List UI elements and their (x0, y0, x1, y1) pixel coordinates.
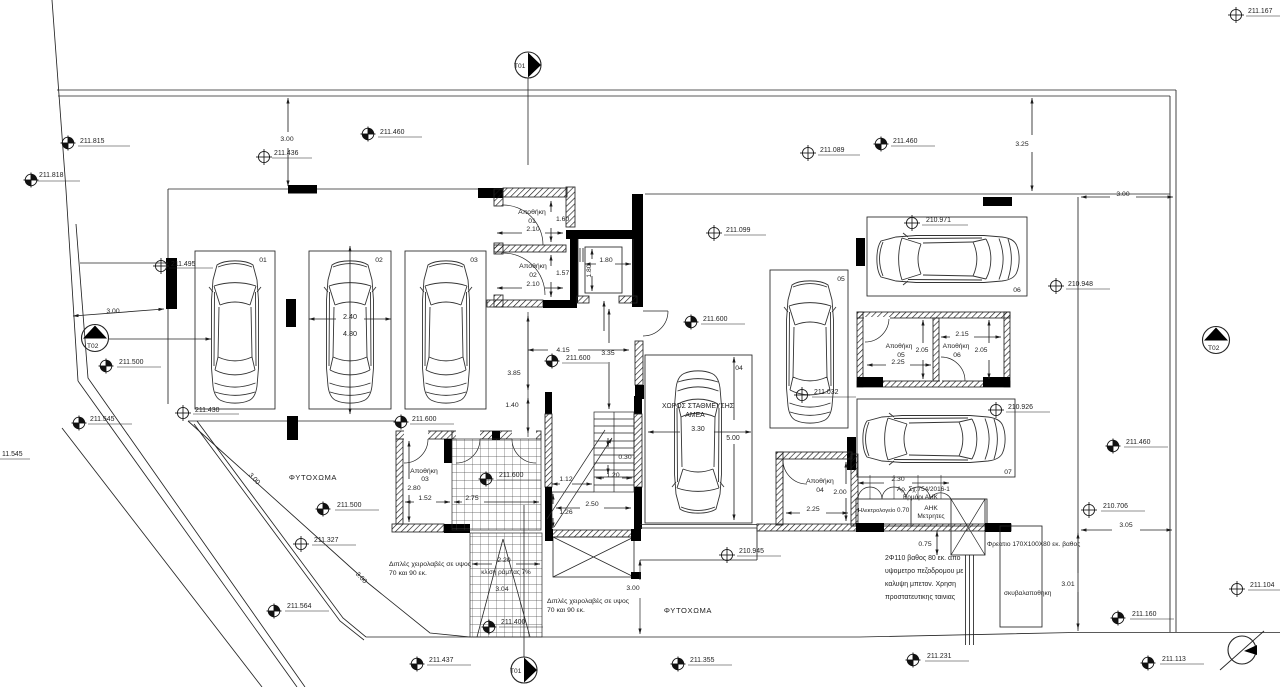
svg-text:2.25: 2.25 (891, 359, 904, 366)
svg-text:211.600: 211.600 (566, 355, 591, 362)
svg-text:3.04: 3.04 (495, 586, 508, 593)
svg-text:Αποθήκη: Αποθήκη (806, 478, 834, 485)
svg-text:02: 02 (375, 257, 383, 264)
svg-text:0.30: 0.30 (618, 454, 631, 461)
svg-text:211.460: 211.460 (893, 138, 918, 145)
svg-text:T02: T02 (1208, 345, 1220, 352)
svg-text:211.460: 211.460 (380, 129, 405, 136)
svg-text:01: 01 (259, 257, 267, 264)
svg-text:02: 02 (529, 272, 537, 279)
svg-text:2.75: 2.75 (465, 495, 478, 502)
svg-text:211.400: 211.400 (501, 619, 526, 626)
svg-text:211.089: 211.089 (820, 147, 845, 154)
svg-text:ΦΥΤΟΧΩΜΑ: ΦΥΤΟΧΩΜΑ (664, 606, 713, 615)
svg-text:σκυβαλαποθηκη: σκυβαλαποθηκη (1004, 590, 1052, 597)
svg-text:3.35: 3.35 (601, 350, 614, 357)
svg-text:Φρεατιο 170Χ100Χ80 εκ. βαθος: Φρεατιο 170Χ100Χ80 εκ. βαθος (987, 541, 1080, 548)
svg-text:5.00: 5.00 (726, 435, 740, 442)
svg-text:211.564: 211.564 (287, 603, 312, 610)
svg-text:211.160: 211.160 (1132, 611, 1157, 618)
svg-text:Διπλές χειρολαβές σε υψος: Διπλές χειρολαβές σε υψος (389, 560, 472, 568)
svg-text:2.00: 2.00 (833, 489, 846, 496)
svg-text:05: 05 (837, 276, 845, 283)
svg-text:211.436: 211.436 (274, 150, 299, 157)
svg-text:1.80: 1.80 (586, 264, 593, 277)
svg-text:προστατευτικης ταινιας: προστατευτικης ταινιας (885, 594, 956, 601)
svg-text:210.971: 210.971 (926, 217, 951, 224)
svg-text:03: 03 (421, 476, 429, 483)
svg-text:211.355: 211.355 (690, 657, 715, 664)
svg-text:3.01: 3.01 (1061, 581, 1074, 588)
svg-text:T01: T01 (510, 668, 522, 675)
svg-text:3.00: 3.00 (1116, 191, 1129, 198)
svg-text:1.80: 1.80 (599, 257, 612, 264)
svg-text:04: 04 (816, 487, 824, 494)
svg-text:07: 07 (1004, 469, 1012, 476)
svg-text:0.70: 0.70 (897, 507, 910, 514)
svg-text:1.26: 1.26 (559, 509, 572, 516)
svg-text:3.30: 3.30 (691, 426, 705, 433)
svg-text:211.545: 211.545 (90, 416, 115, 423)
svg-text:211.099: 211.099 (726, 227, 751, 234)
svg-text:2.40: 2.40 (343, 312, 357, 321)
svg-text:T02: T02 (87, 343, 99, 350)
svg-text:2Φ110 βαθος 80 εκ. απο: 2Φ110 βαθος 80 εκ. απο (885, 555, 961, 562)
svg-text:2.20: 2.20 (497, 557, 510, 564)
svg-text:1.52: 1.52 (418, 495, 431, 502)
svg-text:01: 01 (528, 218, 536, 225)
svg-text:211.500: 211.500 (337, 502, 362, 509)
svg-text:2.80: 2.80 (407, 485, 420, 492)
svg-text:210.926: 210.926 (1008, 404, 1033, 411)
svg-text:211.437: 211.437 (429, 657, 454, 664)
svg-text:T01: T01 (514, 63, 526, 70)
svg-text:2.50: 2.50 (585, 501, 598, 508)
svg-text:211.231: 211.231 (927, 653, 952, 660)
svg-text:ΦΥΤΟΧΩΜΑ: ΦΥΤΟΧΩΜΑ (289, 473, 338, 482)
svg-text:κλίση ράμπας 7%: κλίση ράμπας 7% (481, 568, 531, 576)
svg-text:4.15: 4.15 (556, 347, 569, 354)
svg-text:2.30: 2.30 (891, 476, 904, 483)
svg-text:04: 04 (735, 365, 743, 372)
svg-text:3.00: 3.00 (106, 308, 119, 315)
svg-text:1.57: 1.57 (556, 270, 569, 277)
svg-text:211.430: 211.430 (195, 407, 220, 414)
svg-text:ΑΜΕΑ: ΑΜΕΑ (685, 412, 705, 419)
svg-text:211.327: 211.327 (314, 537, 339, 544)
svg-text:210.945: 210.945 (739, 548, 764, 555)
svg-text:Αποθήκη: Αποθήκη (943, 343, 970, 350)
svg-text:211.818: 211.818 (39, 172, 64, 179)
svg-text:2.05: 2.05 (916, 347, 929, 354)
svg-text:211.600: 211.600 (499, 472, 524, 479)
svg-text:70 και 90 εκ.: 70 και 90 εκ. (389, 570, 427, 577)
svg-text:Ηλεκτρολογείο: Ηλεκτρολογείο (858, 508, 895, 514)
svg-text:2.10: 2.10 (526, 226, 539, 233)
svg-text:1.12: 1.12 (559, 476, 572, 483)
svg-text:05: 05 (897, 352, 905, 359)
svg-text:210.948: 210.948 (1068, 281, 1093, 288)
svg-text:03: 03 (470, 257, 478, 264)
svg-text:3.25: 3.25 (1015, 141, 1028, 148)
svg-text:Αρ. Σχ.754/2016-1: Αρ. Σχ.754/2016-1 (897, 486, 950, 493)
svg-text:ΧΩΡΟΣ ΣΤΑΘΜΕΥΣΗΣ: ΧΩΡΟΣ ΣΤΑΘΜΕΥΣΗΣ (662, 403, 734, 410)
svg-text:3.00: 3.00 (626, 585, 639, 592)
svg-text:06: 06 (1013, 287, 1021, 294)
svg-text:211.460: 211.460 (1126, 439, 1151, 446)
svg-text:211.032: 211.032 (814, 389, 839, 396)
svg-text:211.113: 211.113 (1162, 656, 1186, 663)
svg-text:Μετρητες: Μετρητες (917, 513, 944, 520)
svg-text:4.80: 4.80 (343, 329, 357, 338)
svg-text:υψομετρο πεζοδρομου με: υψομετρο πεζοδρομου με (885, 568, 963, 575)
svg-text:2.15: 2.15 (955, 331, 968, 338)
svg-text:Ερμάρι ΑΗΚ: Ερμάρι ΑΗΚ (903, 493, 939, 501)
svg-text:211.104: 211.104 (1250, 582, 1275, 589)
svg-text:καλυψη μπετον. Χρηση: καλυψη μπετον. Χρηση (885, 581, 956, 588)
svg-text:11.545: 11.545 (2, 451, 23, 458)
svg-text:3.05: 3.05 (1119, 522, 1132, 529)
svg-text:Αποθήκη: Αποθήκη (886, 343, 913, 350)
svg-text:1.40: 1.40 (505, 402, 518, 409)
svg-text:Διπλές χειρολαβές σε υψος: Διπλές χειρολαβές σε υψος (547, 597, 630, 605)
svg-text:211.167: 211.167 (1248, 8, 1273, 15)
svg-text:Αποθήκη: Αποθήκη (410, 468, 438, 475)
svg-text:Αποθήκη: Αποθήκη (519, 263, 547, 270)
svg-text:211.500: 211.500 (119, 359, 144, 366)
svg-text:211.600: 211.600 (703, 316, 728, 323)
svg-text:ΑΗΚ: ΑΗΚ (924, 505, 938, 512)
svg-text:3.85: 3.85 (507, 370, 520, 377)
svg-text:0.75: 0.75 (918, 541, 931, 548)
svg-text:2.25: 2.25 (806, 506, 819, 513)
svg-text:2.05: 2.05 (975, 347, 988, 354)
svg-text:211.495: 211.495 (171, 261, 196, 268)
svg-text:06: 06 (953, 352, 961, 359)
svg-text:3.00: 3.00 (280, 136, 293, 143)
svg-text:70 και 90 εκ.: 70 και 90 εκ. (547, 607, 585, 614)
svg-text:2.10: 2.10 (526, 281, 539, 288)
svg-text:210.706: 210.706 (1103, 503, 1128, 510)
svg-text:211.815: 211.815 (80, 138, 105, 145)
svg-text:211.600: 211.600 (412, 416, 437, 423)
